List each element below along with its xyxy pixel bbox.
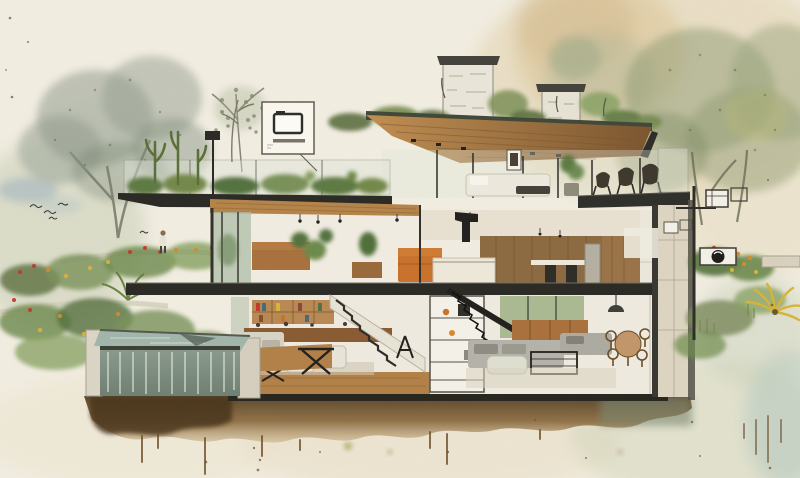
watercolor-house-section-illustration — [0, 0, 800, 478]
paper-grain-overlay — [0, 0, 800, 478]
illustration-canvas — [0, 0, 800, 478]
